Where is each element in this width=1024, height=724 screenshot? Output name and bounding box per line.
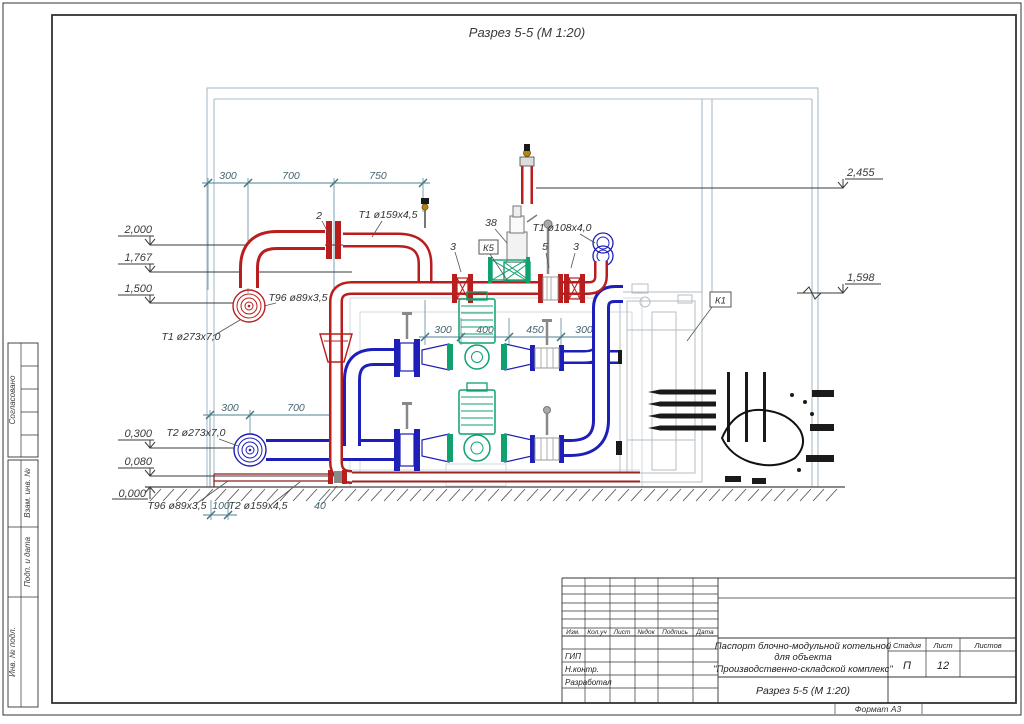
- tb-col-data: Дата: [695, 629, 714, 636]
- air-vent-valve: [421, 198, 429, 228]
- elev-2455: 2,455: [838, 167, 883, 188]
- dim-bottom-100: 100: [212, 500, 230, 512]
- dim-ll-300: 300: [221, 402, 239, 414]
- stamp-inv: Инв. № подл.: [8, 627, 17, 677]
- callout-2: 2: [315, 210, 322, 222]
- dim-mid-300a: 300: [434, 324, 452, 336]
- svg-text:0,080: 0,080: [124, 456, 152, 468]
- tb-sheets-label: Листов: [973, 641, 1001, 650]
- circulation-pumps: [447, 292, 507, 462]
- label-t1-273: Т1 ø273х7,0: [162, 331, 221, 343]
- elev-1598: 1,598: [838, 272, 881, 293]
- tb-col-podpis: Подпись: [662, 628, 688, 636]
- dim-mid-300b: 300: [575, 324, 593, 336]
- dimension-chain-top: 300 700 750: [202, 170, 430, 187]
- dim-top-750: 750: [369, 170, 387, 182]
- sheet-borders: [3, 3, 1021, 715]
- elev-1500: 1,500: [118, 283, 155, 303]
- callout-3b: 3: [573, 241, 579, 253]
- elev-1767: 1,767: [118, 252, 155, 272]
- callout-38: 38: [485, 217, 497, 229]
- svg-text:К5: К5: [483, 243, 495, 254]
- elevation-marks: 2,000 1,767 1,500 0,300 0,080: [112, 167, 883, 500]
- drawing-title: Разрез 5-5 (М 1:20): [469, 25, 585, 40]
- tb-role-gip: ГИП: [565, 652, 581, 661]
- dimension-chain-mid: 300 400 450 300: [419, 324, 610, 341]
- label-t1-108: Т1 ø108х4,0: [533, 222, 592, 234]
- elev-0000: 0,000: [112, 487, 155, 500]
- tb-col-list: Лист: [613, 629, 631, 636]
- pipe-end-view-t2-273: [234, 434, 266, 466]
- svg-text:0,300: 0,300: [124, 428, 152, 440]
- tb-doc-title-1: Паспорт блочно-модульной котельной: [715, 641, 892, 652]
- tb-drawing-name: Разрез 5-5 (М 1:20): [756, 685, 850, 697]
- svg-text:2,000: 2,000: [123, 224, 152, 236]
- tb-stage-value: П: [903, 660, 911, 672]
- svg-text:2,455: 2,455: [846, 167, 875, 179]
- tb-role-nkontr: Н.контр.: [565, 665, 599, 674]
- dim-top-700: 700: [282, 170, 300, 182]
- label-t1-159: Т1 ø159х4,5: [359, 209, 418, 221]
- stamp-vzam: Взам. инв. №: [23, 468, 32, 518]
- svg-text:1,598: 1,598: [847, 272, 875, 284]
- tb-col-koluch: Кол.уч: [587, 629, 607, 636]
- dim-top-300: 300: [219, 170, 237, 182]
- tb-doc-title-3: "Производственно-складской комплекс": [713, 664, 893, 675]
- svg-text:1,500: 1,500: [124, 283, 152, 295]
- callout-3a: 3: [450, 241, 456, 253]
- label-t96-89-bottom: Т96 ø89х3,5: [148, 500, 207, 512]
- label-t2-159: Т2 ø159х4,5: [229, 500, 288, 512]
- collector-valve-3b: [564, 274, 585, 303]
- format-label: Формат А3: [855, 704, 902, 714]
- drawing-sheet: 300 700 750 300 400 450 300 300 700 100 …: [0, 0, 1024, 724]
- svg-text:0,000: 0,000: [118, 488, 146, 500]
- pump-lower: [447, 383, 507, 462]
- svg-text:1,767: 1,767: [124, 252, 152, 264]
- svg-text:К1: К1: [715, 296, 726, 307]
- pipe-end-view-t1-273: [233, 290, 265, 322]
- tb-sheet-label: Лист: [932, 641, 952, 650]
- left-margin-stamps: Согласовано Взам. инв. № Подп. и дата Ин…: [8, 343, 38, 707]
- title-block: Изм. Кол.уч Лист №док Подпись Дата ГИП Н…: [562, 578, 1016, 703]
- elev-0300: 0,300: [118, 428, 155, 448]
- stamp-podp: Подп. и дата: [23, 536, 32, 587]
- callout-k1: К1: [687, 292, 731, 341]
- label-t96-89-top: Т96 ø89х3,5: [269, 292, 328, 304]
- stamp-soglasovano: Согласовано: [8, 375, 17, 424]
- cad-drawing: 300 700 750 300 400 450 300 300 700 100 …: [0, 0, 1024, 724]
- burner-assembly: [616, 288, 834, 484]
- tb-sheet-value: 12: [937, 660, 949, 672]
- supply-piping-red: [214, 144, 640, 487]
- elev-0080: 0,080: [118, 456, 155, 476]
- tb-stage-label: Стадия: [893, 641, 921, 650]
- dim-mid-450: 450: [526, 324, 544, 336]
- tb-doc-title-2: для объекта: [774, 652, 832, 663]
- tb-col-ndok: №док: [637, 628, 655, 636]
- callout-5: 5: [542, 241, 548, 253]
- tb-role-razrabotal: Разработал: [565, 678, 612, 687]
- elev-2000: 2,000: [118, 224, 155, 245]
- dim-ll-700: 700: [287, 402, 305, 414]
- floor-line: [145, 487, 845, 501]
- label-t2-273: Т2 ø273х7,0: [167, 427, 226, 439]
- tb-col-izm: Изм.: [566, 629, 580, 636]
